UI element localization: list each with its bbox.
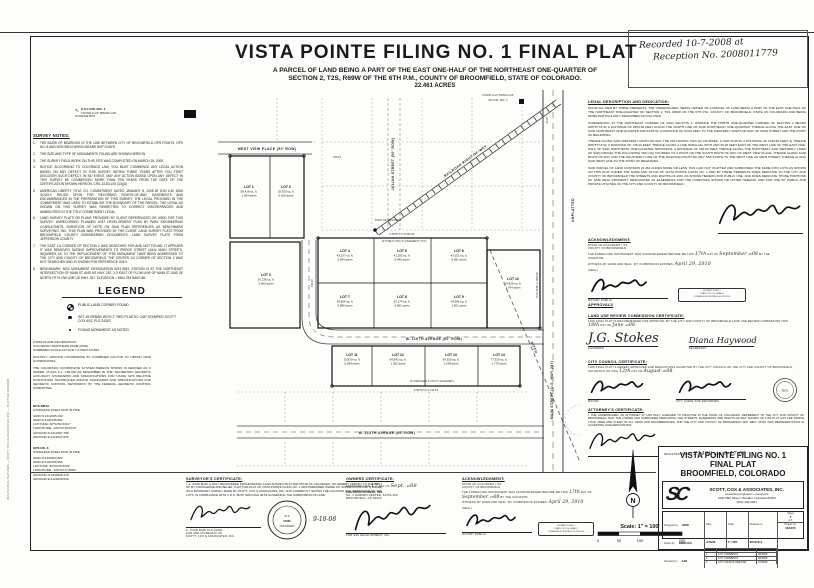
lurc-month-hw: June <box>612 323 623 328</box>
scale-tick: 100 <box>637 538 644 543</box>
lot-acres: 0.991 acres <box>394 304 410 308</box>
n-quarter-corner-marker <box>184 110 196 118</box>
point-of-beginning-marker <box>373 228 377 232</box>
clerk-caption: CITY CLERK AND RECORDER <box>676 400 746 403</box>
benchmark-line: GROUND E:3121068.536 <box>33 477 151 481</box>
street-labels: WEST VIEW PLACE (50' ROW)W. 116TH AVENUE… <box>238 138 575 435</box>
ack2-heading: ACKNOWLEDGMENT: <box>462 477 594 481</box>
note-text: THE SIZE AND TYPE OF MONUMENTS FOUND ARE… <box>40 152 146 156</box>
svg-text:24302: 24302 <box>283 519 291 523</box>
north-letter: N <box>630 498 635 505</box>
legal-paragraph: KNOW ALL MEN BY THESE PRESENTS, THE UNDE… <box>588 106 806 118</box>
lot-acres: 0.991 acres <box>451 258 467 262</box>
dimension-label: S 89°57'14" E 745.20' <box>414 389 439 392</box>
owners-month-hw: Sept. <box>391 483 405 489</box>
revision-row: 1CITY COMMENTS05/16/08 <box>705 552 777 556</box>
ack-expires-label: MY COMMISSION EXPIRES: <box>634 263 674 266</box>
legend-item: SET #5 REBAR WITH 1" RED PLASTIC CAP STA… <box>62 315 182 324</box>
owners-heading: OWNERS CERTIFICATE: <box>346 477 458 481</box>
page-acreage: 22.461 ACRES <box>235 83 635 89</box>
lurc-year-hw: 08 <box>629 323 635 328</box>
note-text: THE SURVEY FIELD WORK ON THIS SITE WAS C… <box>40 159 164 163</box>
street-label: UNPLATTED <box>571 198 575 222</box>
svg-text:COLORADO: COLORADO <box>280 524 295 528</box>
adjacent-grid-lower <box>237 392 527 466</box>
survey-notes: SURVEY NOTES: 1.THE BASIS OF BEARINGS IS… <box>33 133 183 282</box>
lot-acres: 0.945 acres <box>394 258 410 262</box>
survey-note: 3.THE SURVEY FIELD WORK ON THIS SITE WAS… <box>33 159 183 163</box>
lot-acres: 1.252 acres <box>390 362 406 366</box>
ack-year-hw: 08 <box>752 252 758 257</box>
survey-note: 4.NOTICE: ACCORDING TO COLORADO LAW, YOU… <box>33 165 183 186</box>
svg-text:PLS: PLS <box>285 514 290 518</box>
revision-cell: 2 <box>705 557 717 560</box>
owner-signature <box>718 198 803 234</box>
survey-notes-heading: SURVEY NOTES: <box>33 133 183 138</box>
firm-phone: (303) 444-3051 <box>690 500 803 504</box>
ack-seal-note: (SEAL) <box>588 269 806 272</box>
dimension-label: 330.00' <box>333 156 342 159</box>
revision-row: 3CITY COUNCIL MEETING07/29/08 <box>705 560 777 564</box>
ack-witness: WITNESS MY HAND AND SEAL. <box>588 263 633 266</box>
lurc-heading: LAND USE REVIEW COMMISSION CERTIFICATE: <box>588 314 806 318</box>
dimension-label: NE COR. SEC. 2 <box>488 99 508 102</box>
ack-month-hw: September <box>719 252 746 257</box>
lurc-certificate: LAND USE REVIEW COMMISSION CERTIFICATE: … <box>588 314 806 350</box>
state-plane-paragraph: STATE PLANE INFORMATION: COLORADO NORTHE… <box>33 340 151 352</box>
attorney-body: I, THE UNDERSIGNED, AN ATTORNEY AT LAW D… <box>588 414 804 429</box>
dimension-label: FOUND 3-1/4" BRASS CAP <box>482 94 514 97</box>
owners-certificate: OWNERS CERTIFICATE: EXECUTED THIS 17 DAY… <box>346 477 458 537</box>
street-label: W. 116TH AVENUE (60' ROW) <box>406 337 463 341</box>
survey-note: 8.BENCHMARK: NGS MONUMENT DESIGNATION W3… <box>33 267 183 279</box>
legal-heading: LEGAL DESCRIPTION AND DEDICATION: <box>588 100 806 104</box>
legal-paragraph: THENCE ALONG SAID WESTERLY RIGHT-OF-WAY … <box>588 139 806 163</box>
recording-note-box: Recorded 10-7-2008 at Reception No. 2008… <box>628 30 808 88</box>
ne-corner-marker <box>519 99 524 104</box>
dimension-label: 20' DRAINAGE & UTILITY EASEMENT <box>410 380 454 383</box>
set-symbol-icon <box>68 316 71 319</box>
council-certificate: CITY COUNCIL CERTIFICATE: THIS FINAL PLA… <box>588 360 806 403</box>
legend-heading: LEGEND <box>62 286 182 298</box>
dimension-label: 10' PUBLIC UTILITY EASEMENT (TYP.) <box>382 240 427 243</box>
note-number: 8. <box>33 267 40 279</box>
mayor-signature: MAYOR <box>588 377 650 403</box>
notary-stamp: NOTARY PUBLICSTATE OF COLORADOCOMMISSION… <box>678 288 746 302</box>
ack-county: COUNTY OF BROOMFIELD <box>588 247 626 250</box>
notary-signature: NOTARY PUBLIC <box>588 275 668 302</box>
attorney-heading: ATTORNEY'S CERTIFICATE: <box>588 408 804 412</box>
legal-description: LEGAL DESCRIPTION AND DEDICATION: KNOW A… <box>588 100 806 188</box>
plat-drawing: LOT 159,416 sq. ft.1.364 acresLOT 218,30… <box>182 90 582 472</box>
lot-acres: 1.764 acres <box>505 286 521 290</box>
legal-paragraph: SAID PARCEL OF LAND CONTAINS 22.461 ACRE… <box>588 166 806 186</box>
tb-table: Designed by BMR Drawn by BMR/JAS Checked… <box>662 511 804 539</box>
surveyor-name3: SCOTT, COX & ASSOCIATES, INC. <box>186 535 261 538</box>
page-subtitle2: SECTION 2, T2S, R69W OF THE 6TH P.M., CO… <box>235 75 635 82</box>
stamp-line: COMMISSION EXPIRES 04-29-2010 <box>541 531 591 534</box>
chairman-signature: J.G. Stokes CHAIRMAN <box>588 331 659 350</box>
lot-acres: 1.248 acres <box>443 362 459 366</box>
state-plane-paragraph: MULTIPLY GROUND COORDINATE BY COMBINED F… <box>33 355 151 363</box>
revision-cell: CITY COUNCIL MEETING <box>717 561 757 564</box>
legend: LEGEND PUBLIC LAND CORNER FOUNDSET #5 RE… <box>62 286 182 336</box>
lot-acres: 0.993 acres <box>337 258 353 262</box>
revision-row: 2CITY COMMENTS06/30/08 <box>705 556 777 560</box>
railroad-row <box>374 100 561 235</box>
plat-sheet: 08A37E FINAL PLAT.DWG — SCOTT, COX & ASS… <box>0 0 814 588</box>
chairman-caption: CHAIRMAN <box>588 347 659 350</box>
council-seal: SEAL <box>772 377 798 403</box>
revision-cell: 06/30/08 <box>757 557 777 560</box>
dimension-label: N 00°13'46" E 1330.60' <box>536 272 539 298</box>
page-title: VISTA POINTE FILING NO. 1 FINAL PLAT <box>235 42 635 64</box>
lot-acres: 0.886 acres <box>337 304 353 308</box>
lot-acres: 1.001 acres <box>451 304 467 308</box>
street-label: JULIAN STREET (50' ROW) <box>391 138 395 191</box>
header: VISTA POINTE FILING NO. 1 FINAL PLAT A P… <box>235 42 635 89</box>
street-label: WEST VIEW PLACE (50' ROW) <box>238 147 297 151</box>
note-text: THE EAST 1/4 CORNER OF SECTION 2 WAS SEA… <box>40 244 183 265</box>
survey-note: 5.AMERICAN LIBERTY TITLE CO. COMMITMENT … <box>33 189 183 214</box>
legend-list: PUBLIC LAND CORNER FOUNDSET #5 REBAR WIT… <box>62 303 182 332</box>
title-block: VISTA POINTE FILING NO. 1 FINAL PLAT BRO… <box>658 446 808 550</box>
bm-type: STAINLESS STEEL ROD IN PIPE <box>33 450 151 454</box>
street-label: W. 115TH AVENUE (60' ROW) <box>359 431 416 435</box>
firm-logo: SC <box>664 484 688 506</box>
note-number: 3. <box>33 159 40 163</box>
acknowledgment-right: ACKNOWLEDGMENT: STATE OF COLORADO } SS. … <box>588 238 806 302</box>
note-number: 2. <box>33 152 40 156</box>
clerk-signature: CITY CLERK AND RECORDER <box>676 377 746 403</box>
tb-title2: FINAL PLAT <box>659 460 807 469</box>
legend-label: SET #5 REBAR WITH 1" RED PLASTIC CAP STA… <box>78 315 182 324</box>
plot-stamp: 08A37E FINAL PLAT.DWG — SCOTT, COX & ASS… <box>6 280 10 500</box>
scale-tick: 0 <box>597 538 600 543</box>
note-text: NOTICE: ACCORDING TO COLORADO LAW, YOU M… <box>40 165 183 186</box>
firm-box: SC SCOTT, COX & ASSOCIATES, INC. consult… <box>662 481 804 509</box>
ack-expires-hw: April 29, 2010 <box>675 262 711 267</box>
corner-symbol-icon <box>67 304 74 311</box>
acknowledgment-bottom: ACKNOWLEDGMENT: STATE OF COLORADO } SS. … <box>462 477 594 536</box>
survey-notes-list: 1.THE BASIS OF BEARINGS IS THE LINE BETW… <box>33 141 183 280</box>
note-number: 1. <box>33 141 40 149</box>
dimension-label: N 89°57'14" W 662.93' <box>389 233 415 236</box>
ack-body: DAY OF <box>707 253 718 256</box>
revision-cell: 05/16/08 <box>757 553 777 556</box>
council-day-hw: 12th <box>619 369 630 374</box>
corner-callout: ↖ N 1/4 COR. SEC. 2 FOUND 3-1/4" BRASS C… <box>75 108 185 119</box>
ack-body: THE FOREGOING INSTRUMENT WAS ACKNOWLEDGE… <box>588 253 694 256</box>
found-symbol-icon <box>69 329 71 331</box>
council-year-hw: 08 <box>666 369 672 374</box>
revision-cell: CITY COMMENTS <box>717 553 757 556</box>
lot-acres: 1.775 acres <box>491 362 507 366</box>
mayor-caption: MAYOR <box>588 400 650 403</box>
note-number: 5. <box>33 189 40 214</box>
ack-heading: ACKNOWLEDGMENT: <box>588 238 806 242</box>
notary2-signature: NOTARY PUBLIC <box>462 511 532 536</box>
owners-exec: EXECUTED THIS <box>346 485 370 488</box>
surveyor-date-hw: 9-18-08 <box>313 516 336 523</box>
benchmark-line: GROUND E:3121037.845 <box>33 435 151 439</box>
scale-tick: 50 <box>617 538 622 543</box>
owners-year-hw: 08 <box>410 483 417 489</box>
lurc-body: DAY OF <box>600 324 611 327</box>
revision-cell: CITY COMMENTS <box>717 557 757 560</box>
owners-day-hw: 17 <box>371 483 378 489</box>
survey-note: 1.THE BASIS OF BEARINGS IS THE LINE BETW… <box>33 141 183 149</box>
north-arrow: N <box>605 448 661 520</box>
svg-text:SEAL: SEAL <box>782 389 789 393</box>
lot-labels: LOT 159,416 sq. ft.1.364 acresLOT 218,30… <box>241 185 522 366</box>
dimension-label: 60.00' <box>546 116 549 123</box>
legend-item: PUBLIC LAND CORNER FOUND <box>62 303 182 311</box>
legend-label: PUBLIC LAND CORNER FOUND <box>78 303 129 307</box>
surveyor-seal: PLS 24302 COLORADO <box>266 499 308 541</box>
tb-title3: BROOMFIELD, COLORADO <box>659 469 807 478</box>
note-text: AMERICAN LIBERTY TITLE CO. COMMITMENT DA… <box>40 189 183 214</box>
attorney-signature <box>588 429 658 457</box>
notary-caption: NOTARY PUBLIC <box>588 299 668 302</box>
note-text: THE BASIS OF BEARINGS IS THE LINE BETWEE… <box>40 141 183 149</box>
owners-exec2: DAY OF <box>379 485 390 488</box>
page-subtitle1: A PARCEL OF LAND BEING A PART OF THE EAS… <box>235 67 635 74</box>
bm-type: STAINLESS STEEL ROD IN PIPE <box>33 408 151 412</box>
dimension-label: POINT OF BEGINNING <box>375 219 402 222</box>
revision-cell: 07/29/08 <box>757 561 777 564</box>
council-heading: CITY COUNCIL CERTIFICATE: <box>588 360 806 364</box>
legal-paragraph: COMMENCING AT THE NORTHEAST CORNER OF SA… <box>588 121 806 137</box>
note-text: LAND SURVEY PLATS OR PLANS PROVIDED BY C… <box>40 216 183 241</box>
benchmark-ngs: NGS BM13 STAINLESS STEEL ROD IN PIPE GRI… <box>33 404 151 439</box>
council-body: DAY OF <box>632 370 643 373</box>
callout-line: IN RANGE BOX <box>75 115 185 119</box>
adjacent-grid-upper <box>237 98 542 230</box>
tb-title1: VISTA POINTE FILING NO. 1 <box>659 451 807 460</box>
survey-note: 6.LAND SURVEY PLATS OR PLANS PROVIDED BY… <box>33 216 183 241</box>
revision-cell: 1 <box>705 553 717 556</box>
lot-acres: 1.364 acres <box>241 194 257 198</box>
lot-boundaries <box>230 156 540 386</box>
surveyor-signature <box>186 502 261 528</box>
council-month-hw: August <box>643 369 661 374</box>
note-number: 4. <box>33 165 40 186</box>
ack-day-hw: 17th <box>695 252 706 257</box>
note-text: BENCHMARK: NGS MONUMENT DESIGNATION W33 … <box>40 267 183 279</box>
state-plane-info: STATE PLANE INFORMATION: COLORADO NORTHE… <box>33 340 151 393</box>
legend-label: FOUND MONUMENT AS NOTED <box>78 328 129 332</box>
street-label: DITCH <box>530 341 539 354</box>
legend-item: FOUND MONUMENT AS NOTED <box>62 328 182 332</box>
note-number: 7. <box>33 244 40 265</box>
revision-cell: 3 <box>705 561 717 564</box>
secretary-caption: SECRETARY <box>689 347 757 350</box>
lot-acres: 0.420 acres <box>278 194 294 198</box>
survey-note: 2.THE SIZE AND TYPE OF MONUMENTS FOUND A… <box>33 152 183 156</box>
street-label: MAIN STREET (U.S. HWY 287) <box>550 361 554 420</box>
note-number: 6. <box>33 216 40 241</box>
stamp-line: COMMISSION EXPIRES 04-29-2010 <box>681 296 743 299</box>
survey-note: 7.THE EAST 1/4 CORNER OF SECTION 2 WAS S… <box>33 244 183 265</box>
lurc-day-hw: 18th <box>588 323 599 328</box>
lot-acres: 0.600 acres <box>258 282 274 286</box>
secretary-signature: Diana Haywood SECRETARY <box>689 336 757 350</box>
lot-acres: 0.594 acres <box>344 362 360 366</box>
dimension-label: 330.00' <box>311 278 314 287</box>
state-plane-paragraph: THE COLORADO COORDINATE SYSTEM HEREON SH… <box>33 366 151 390</box>
notary-stamp-2: NOTARY PUBLICSTATE OF COLORADOCOMMISSION… <box>538 522 594 536</box>
benchmark-gps8: GPS NO. 8 STAINLESS STEEL ROD IN PIPE GR… <box>33 446 151 481</box>
approvals-heading: APPROVALS <box>588 303 613 307</box>
